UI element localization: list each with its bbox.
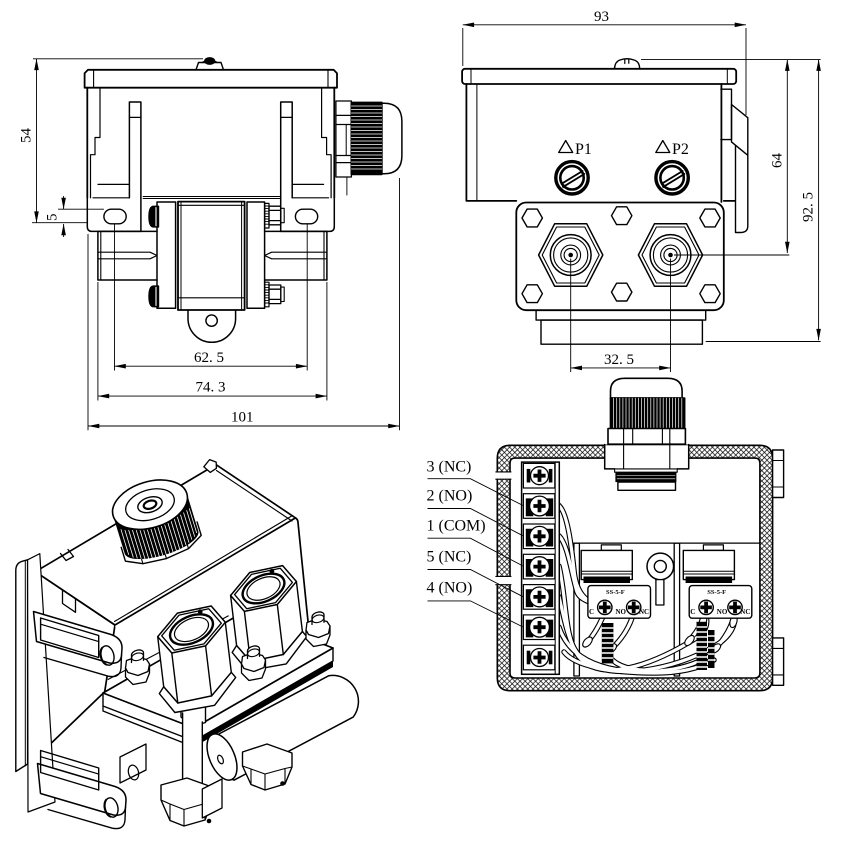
svg-text:C: C [690,608,695,616]
svg-text:5: 5 [45,214,61,222]
svg-text:5 (NC): 5 (NC) [427,549,472,566]
svg-text:1 (COM): 1 (COM) [427,518,486,535]
svg-text:32. 5: 32. 5 [604,352,634,368]
svg-text:P1: P1 [575,141,592,158]
svg-text:74. 3: 74. 3 [196,380,226,396]
svg-text:62. 5: 62. 5 [194,350,224,366]
svg-text:54: 54 [19,128,35,144]
svg-text:P2: P2 [672,141,689,158]
svg-text:93: 93 [594,9,609,25]
svg-text:NO: NO [616,608,627,616]
svg-text:4 (NO): 4 (NO) [427,580,473,597]
svg-text:3 (NC): 3 (NC) [427,459,472,476]
svg-text:2 (NO): 2 (NO) [427,488,473,505]
svg-text:NC: NC [639,608,649,616]
svg-text:C: C [589,608,594,616]
svg-text:64: 64 [770,153,786,169]
svg-text:NO: NO [717,608,728,616]
svg-text:NC: NC [740,608,750,616]
svg-text:SS-5-F: SS-5-F [707,589,726,596]
svg-text:92. 5: 92. 5 [801,192,817,222]
svg-text:SS-5-F: SS-5-F [606,589,625,596]
svg-text:101: 101 [231,410,254,426]
